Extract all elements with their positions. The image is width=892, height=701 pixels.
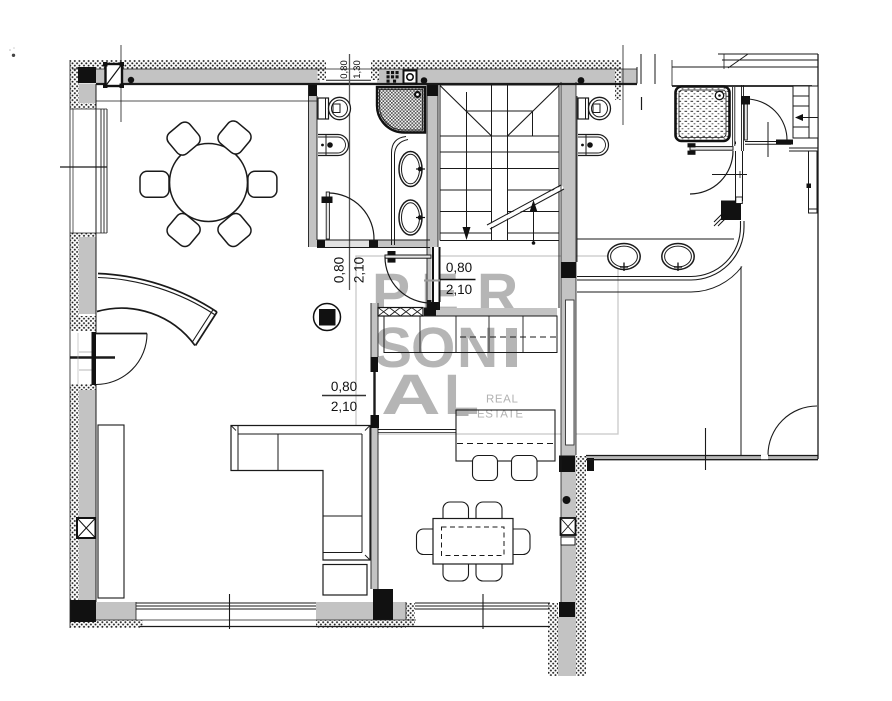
svg-text:A: A (381, 363, 441, 427)
svg-text:0,80: 0,80 (332, 257, 347, 283)
svg-text:2,10: 2,10 (446, 282, 472, 297)
svg-text:0,80: 0,80 (446, 260, 472, 275)
svg-text:0,80: 0,80 (339, 60, 350, 79)
svg-text:L: L (444, 363, 479, 427)
svg-text:2,10: 2,10 (331, 399, 357, 414)
svg-text:0,80: 0,80 (331, 379, 357, 394)
svg-text:REAL: REAL (486, 394, 518, 406)
svg-text:1,30: 1,30 (352, 60, 363, 79)
svg-text:2,10: 2,10 (352, 257, 367, 283)
